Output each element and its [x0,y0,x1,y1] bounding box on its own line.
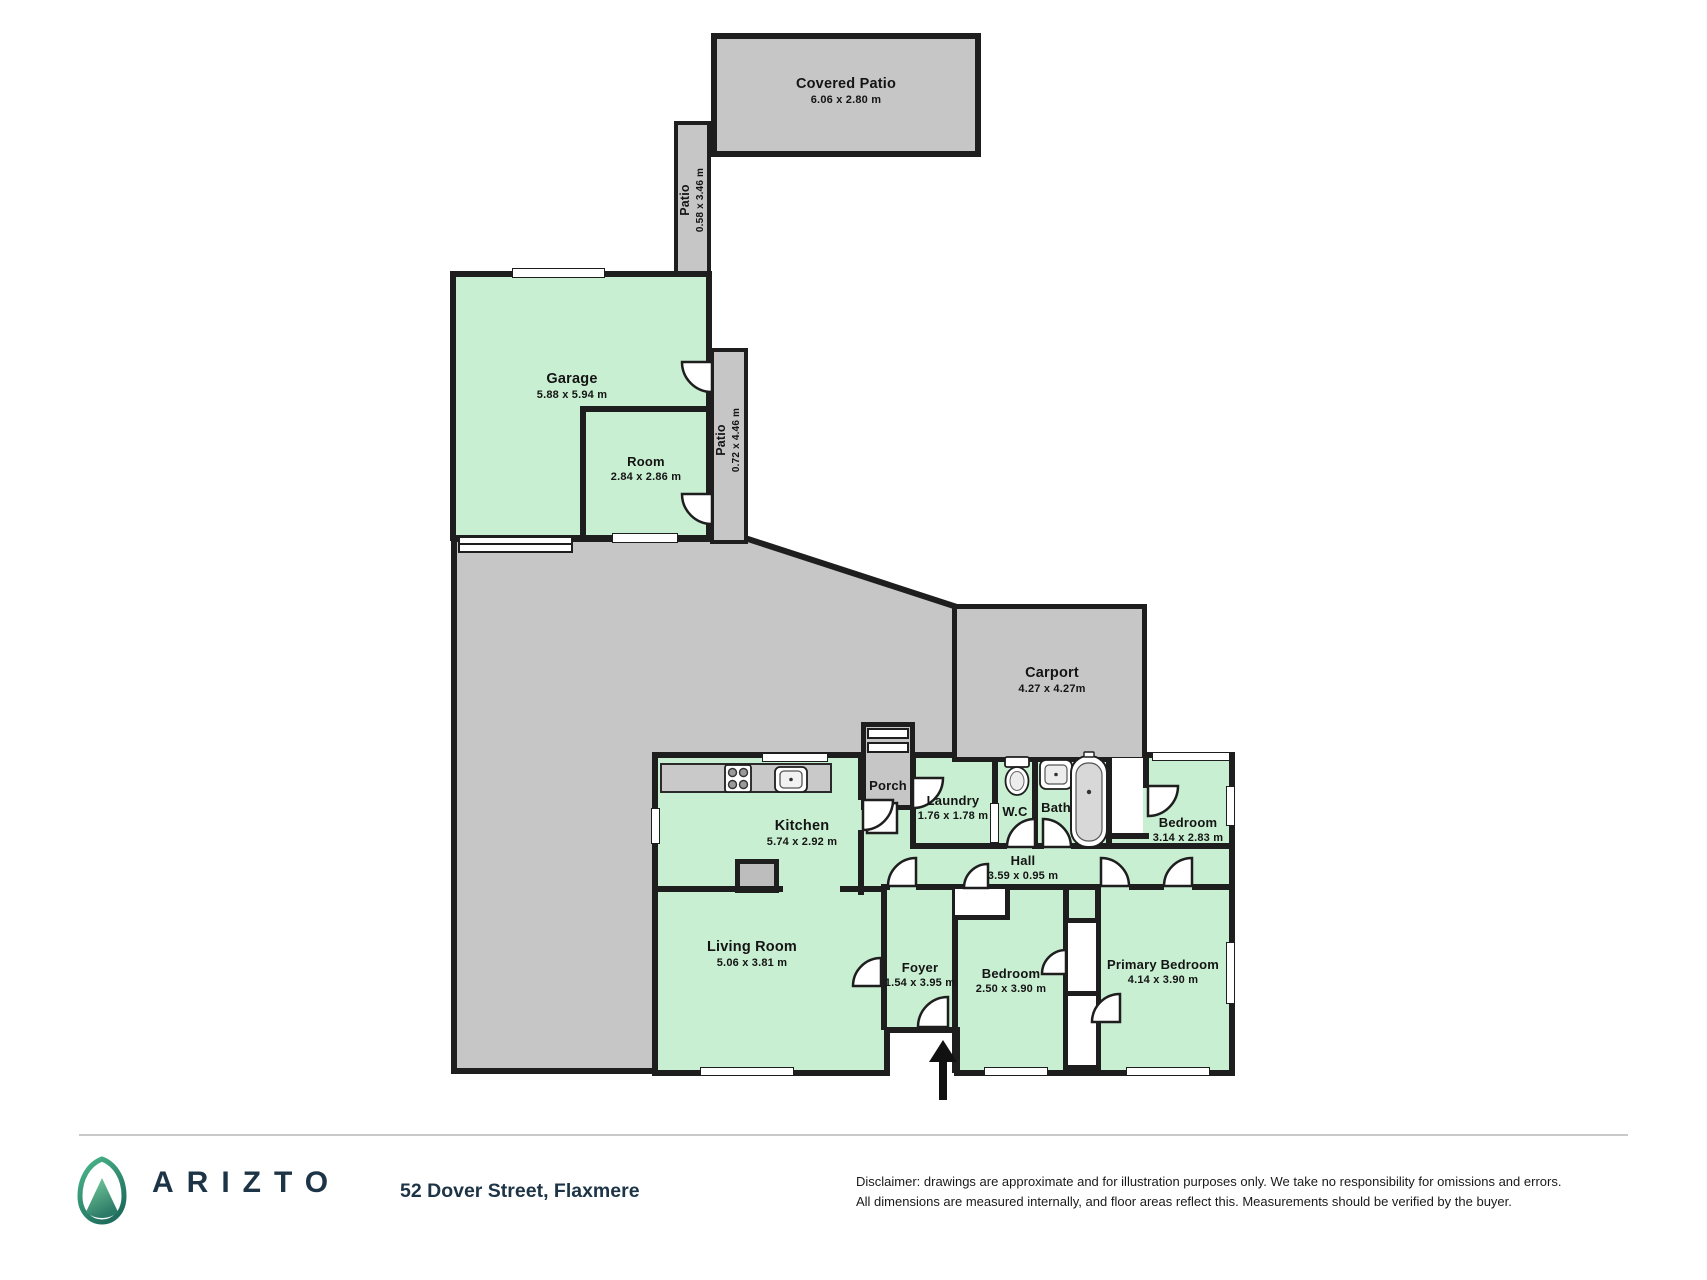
wall-closet-bedroom [1143,758,1149,788]
primary-bottom-window [1126,1067,1210,1076]
bedroom-tr-top-window [1152,752,1230,761]
wall-laundry-left-a [910,758,916,778]
label-primary-bedroom: Primary Bedroom4.14 x 3.90 m [1107,957,1219,989]
label-carport: Carport4.27 x 4.27m [1018,664,1085,698]
label-foyer: Foyer1.54 x 3.95 m [885,960,956,992]
entrance-arrow-stem [939,1060,947,1100]
wall-hall-bottom-b [916,884,952,890]
disclaimer-line-1: Disclaimer: drawings are approximate and… [856,1172,1656,1192]
primary-right-window [1226,942,1235,1004]
entry-door [918,997,948,1027]
wall-hall-bottom-f [1192,884,1232,890]
label-bath: Bath [1041,800,1071,816]
label-covered-patio: Covered Patio6.06 x 2.80 m [796,75,896,109]
hall-closet-door [964,864,988,888]
wall-hall-top-a [910,843,1007,849]
bedroom-2-bottom-window [984,1067,1048,1076]
kitchen-top-window [762,753,828,762]
hall-foyer-door [888,858,916,886]
wall-kitchen-living-a [655,886,783,892]
bath-door [1043,819,1071,847]
wall-kitchen-living-b [840,886,887,892]
disclaimer-line-2: All dimensions are measured internally, … [856,1192,1656,1212]
brand-wordmark: ARIZTO [152,1166,341,1200]
porch-step-2 [867,742,909,753]
wall-hall-bottom-a [881,884,890,890]
property-address: 52 Dover Street, Flaxmere [400,1180,640,1203]
label-laundry: Laundry1.76 x 1.78 m [918,793,989,825]
porch-step-1 [867,728,909,739]
label-hall: Hall3.59 x 0.95 m [988,853,1059,885]
basin-icon [1040,760,1072,789]
wall-hall-top-b [1035,843,1044,849]
plan-base-shapes [0,0,1707,1280]
room-window [612,533,678,543]
label-patio-mid: Patio0.72 x 4.46 m [714,408,744,472]
wall-wc-bath [1032,758,1038,849]
arizto-logo-icon [76,1156,128,1226]
bathtub-icon [1071,752,1107,847]
label-garage: Garage5.88 x 5.94 m [537,370,608,404]
label-kitchen: Kitchen5.74 x 2.92 m [767,817,838,851]
garage-door-divider [460,543,571,545]
laundry-door-strip [990,803,999,843]
kitchen-left-window [651,808,660,844]
label-living-room: Living Room5.06 x 3.81 m [707,938,797,972]
wc-door [1007,819,1035,847]
wall-foyer-left [881,886,887,1030]
wall-kitchen-right-a [858,758,864,800]
label-bedroom-2: Bedroom2.50 x 3.90 m [976,966,1047,998]
disclaimer-text: Disclaimer: drawings are approximate and… [856,1172,1656,1212]
bedroom-tr-closet [1112,758,1143,833]
bedroom-tr-door [1148,786,1178,816]
hall-right-door [1164,858,1192,886]
label-wc: W.C [1002,804,1027,820]
kitchen-counter [660,763,832,793]
wardrobe-divider [1065,991,1099,996]
living-bottom-window [700,1067,794,1076]
living-foyer-door [853,958,881,986]
entrance-arrow-head [929,1040,957,1062]
footer-divider [79,1134,1628,1136]
label-patio-top: Patio0.58 x 3.46 m [678,168,708,232]
label-bedroom-tr: Bedroom3.14 x 2.83 m [1153,815,1224,847]
wall-closet-bottom [1106,833,1149,839]
label-porch: Porch [869,778,907,794]
label-room: Room2.84 x 2.86 m [611,454,682,486]
doors-and-fixtures [0,0,1707,1280]
toilet-icon [1005,757,1029,795]
bedroom-2-closet [955,889,1010,920]
floorplan-page: Covered Patio6.06 x 2.80 m Patio0.58 x 3… [0,0,1707,1280]
primary-hall-door [1101,858,1129,886]
wall-hall-bottom-e [1129,884,1164,890]
garage-window [512,268,605,278]
bedroom-tr-right-window [1226,786,1235,826]
